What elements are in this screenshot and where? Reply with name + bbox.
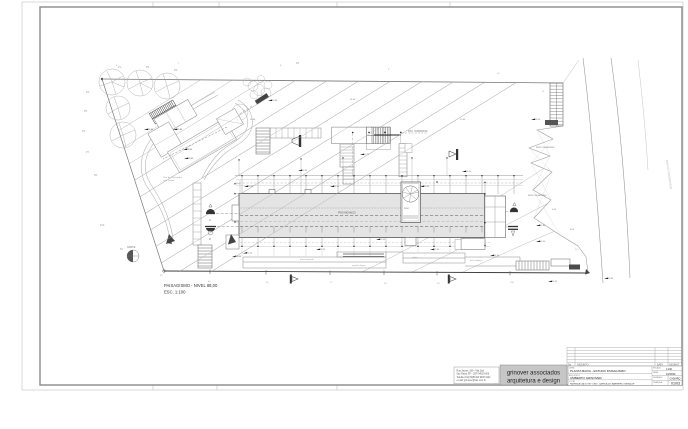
svg-text:PLANTA BAIXA - ESTUDO PAISAG: PLANTA BAIXA - ESTUDO PAISAGISMO xyxy=(570,369,626,373)
svg-text:P1.: P1. xyxy=(118,66,122,69)
svg-text:A: A xyxy=(209,218,211,222)
svg-text:85.00: 85.00 xyxy=(434,249,440,251)
svg-text:ESCALA: ESCALA xyxy=(653,366,661,369)
svg-text:PAISAGISMO - NIVEL 88,00: PAISAGISMO - NIVEL 88,00 xyxy=(164,283,218,288)
svg-text:arquitetura e design: arquitetura e design xyxy=(507,379,560,385)
svg-text:UMBERTO GRINOVER: UMBERTO GRINOVER xyxy=(570,376,603,380)
svg-text:P7.: P7. xyxy=(86,151,90,154)
svg-text:10/02/99: 10/02/99 xyxy=(666,373,676,376)
svg-text:deck madeira: deck madeira xyxy=(470,260,483,262)
svg-text:FAZENDA CALVO MT CINO. CAPELA: FAZENDA CALVO MT CINO. CAPELA DO BARREIR… xyxy=(570,383,635,386)
svg-text:1:100: 1:100 xyxy=(666,368,673,371)
svg-text:86.00: 86.00 xyxy=(424,186,430,188)
svg-text:88.40: 88.40 xyxy=(188,158,194,160)
svg-text:85.40: 85.40 xyxy=(380,239,386,241)
svg-text:52.: 52. xyxy=(120,248,124,251)
svg-text:DESENHO: DESENHO xyxy=(653,377,663,379)
svg-text:90.10: 90.10 xyxy=(272,100,278,102)
svg-text:Sao Paulo SP - CEP 04019-000: Sao Paulo SP - CEP 04019-000 xyxy=(457,374,490,376)
svg-text:12.00: 12.00 xyxy=(460,119,466,121)
svg-text:89.60: 89.60 xyxy=(148,129,154,131)
svg-text:MURO DE ARRIMO: MURO DE ARRIMO xyxy=(536,146,555,149)
svg-text:P2.: P2. xyxy=(146,66,150,69)
svg-text:83.95: 83.95 xyxy=(552,281,558,283)
svg-text:PAV. SUPERIOR: PAV. SUPERIOR xyxy=(408,129,428,133)
svg-text:85.20: 85.20 xyxy=(247,253,253,255)
svg-text:Rua Jaures, 336 - Vila Sud: Rua Jaures, 336 - Vila Sud xyxy=(457,370,485,373)
svg-text:jardim: jardim xyxy=(411,257,418,259)
svg-text:86.00: 86.00 xyxy=(334,186,340,188)
svg-text:16.00: 16.00 xyxy=(250,119,256,121)
svg-text:PISO: PISO xyxy=(404,208,410,210)
svg-text:89.80: 89.80 xyxy=(177,129,183,131)
svg-text:LOCAL: LOCAL xyxy=(569,380,575,383)
svg-text:MURO DE ARRIMO: MURO DE ARRIMO xyxy=(528,194,547,197)
svg-text:P9.: P9. xyxy=(296,62,300,65)
svg-text:ESC. 1:100: ESC. 1:100 xyxy=(164,290,186,295)
svg-text:87.20: 87.20 xyxy=(364,154,370,156)
svg-text:PRANCHA: PRANCHA xyxy=(653,381,663,384)
svg-text:85.20: 85.20 xyxy=(320,249,326,251)
svg-text:83.60: 83.60 xyxy=(608,278,614,280)
svg-text:86.20: 86.20 xyxy=(466,171,472,173)
svg-text:88.00: 88.00 xyxy=(236,256,242,258)
svg-text:P4.: P4. xyxy=(86,91,90,94)
svg-text:DATA: DATA xyxy=(653,371,658,374)
svg-text:PISO MOSAICO: PISO MOSAICO xyxy=(338,212,356,215)
svg-text:86.00: 86.00 xyxy=(248,186,254,188)
svg-text:grinover associados: grinover associados xyxy=(507,371,560,377)
svg-text:espelho d'agua: espelho d'agua xyxy=(352,265,366,267)
svg-text:piso cimentado: piso cimentado xyxy=(300,258,314,261)
svg-text:88.60: 88.60 xyxy=(187,149,193,151)
svg-text:85.90: 85.90 xyxy=(540,241,546,243)
svg-text:88.34: 88.34 xyxy=(535,119,541,121)
svg-text:e-mail: grinover@zaz.com.br: e-mail: grinover@zaz.com.br xyxy=(457,379,487,382)
svg-text:NORTE: NORTE xyxy=(127,246,136,249)
svg-text:CAD/ARQ: CAD/ARQ xyxy=(670,377,681,380)
svg-text:P3.: P3. xyxy=(174,69,178,72)
svg-text:P10.: P10. xyxy=(100,224,105,227)
svg-text:86.80: 86.80 xyxy=(540,225,546,227)
svg-text:P5.: P5. xyxy=(84,110,88,113)
svg-text:P6.: P6. xyxy=(82,130,86,133)
svg-text:P8.: P8. xyxy=(94,174,98,177)
svg-text:86.40: 86.40 xyxy=(302,170,308,172)
svg-text:01/03: 01/03 xyxy=(671,382,680,386)
svg-text:14.00: 14.00 xyxy=(350,99,356,101)
svg-text:D: D xyxy=(209,237,211,241)
svg-text:84.60: 84.60 xyxy=(494,255,500,257)
svg-text:Telefax (011) 5089 DA 9400 912: Telefax (011) 5089 DA 9400 9121 xyxy=(457,376,492,379)
